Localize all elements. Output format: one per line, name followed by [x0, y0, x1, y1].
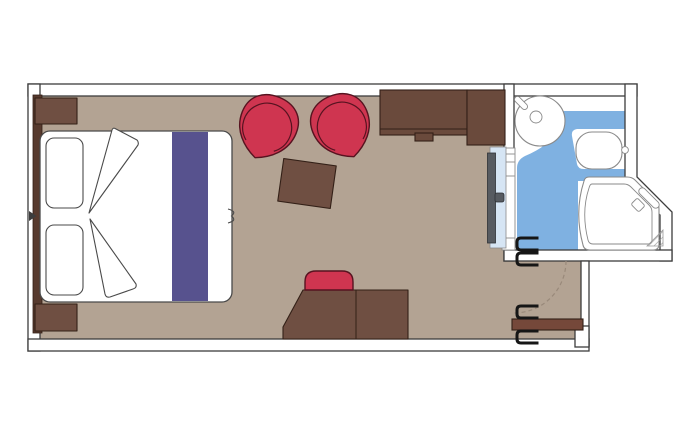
nightstand-top [35, 98, 77, 124]
desk [283, 290, 408, 339]
wall-top [28, 84, 637, 96]
basin-drain [530, 111, 542, 123]
coffee-table [278, 159, 336, 209]
flush-button [622, 147, 629, 154]
bed-runner [172, 132, 208, 301]
nightstand-bottom [35, 304, 77, 331]
floor-plan-page [0, 0, 700, 433]
pillow-2 [46, 225, 83, 295]
entrance-door [512, 319, 583, 330]
shower [579, 177, 663, 250]
stool [305, 271, 353, 290]
slider-knob [495, 193, 504, 202]
wall-bottom [28, 339, 589, 351]
sliding-mirror-door [488, 147, 507, 248]
floor-plan-canvas [0, 0, 700, 433]
pillow-1 [46, 138, 83, 208]
